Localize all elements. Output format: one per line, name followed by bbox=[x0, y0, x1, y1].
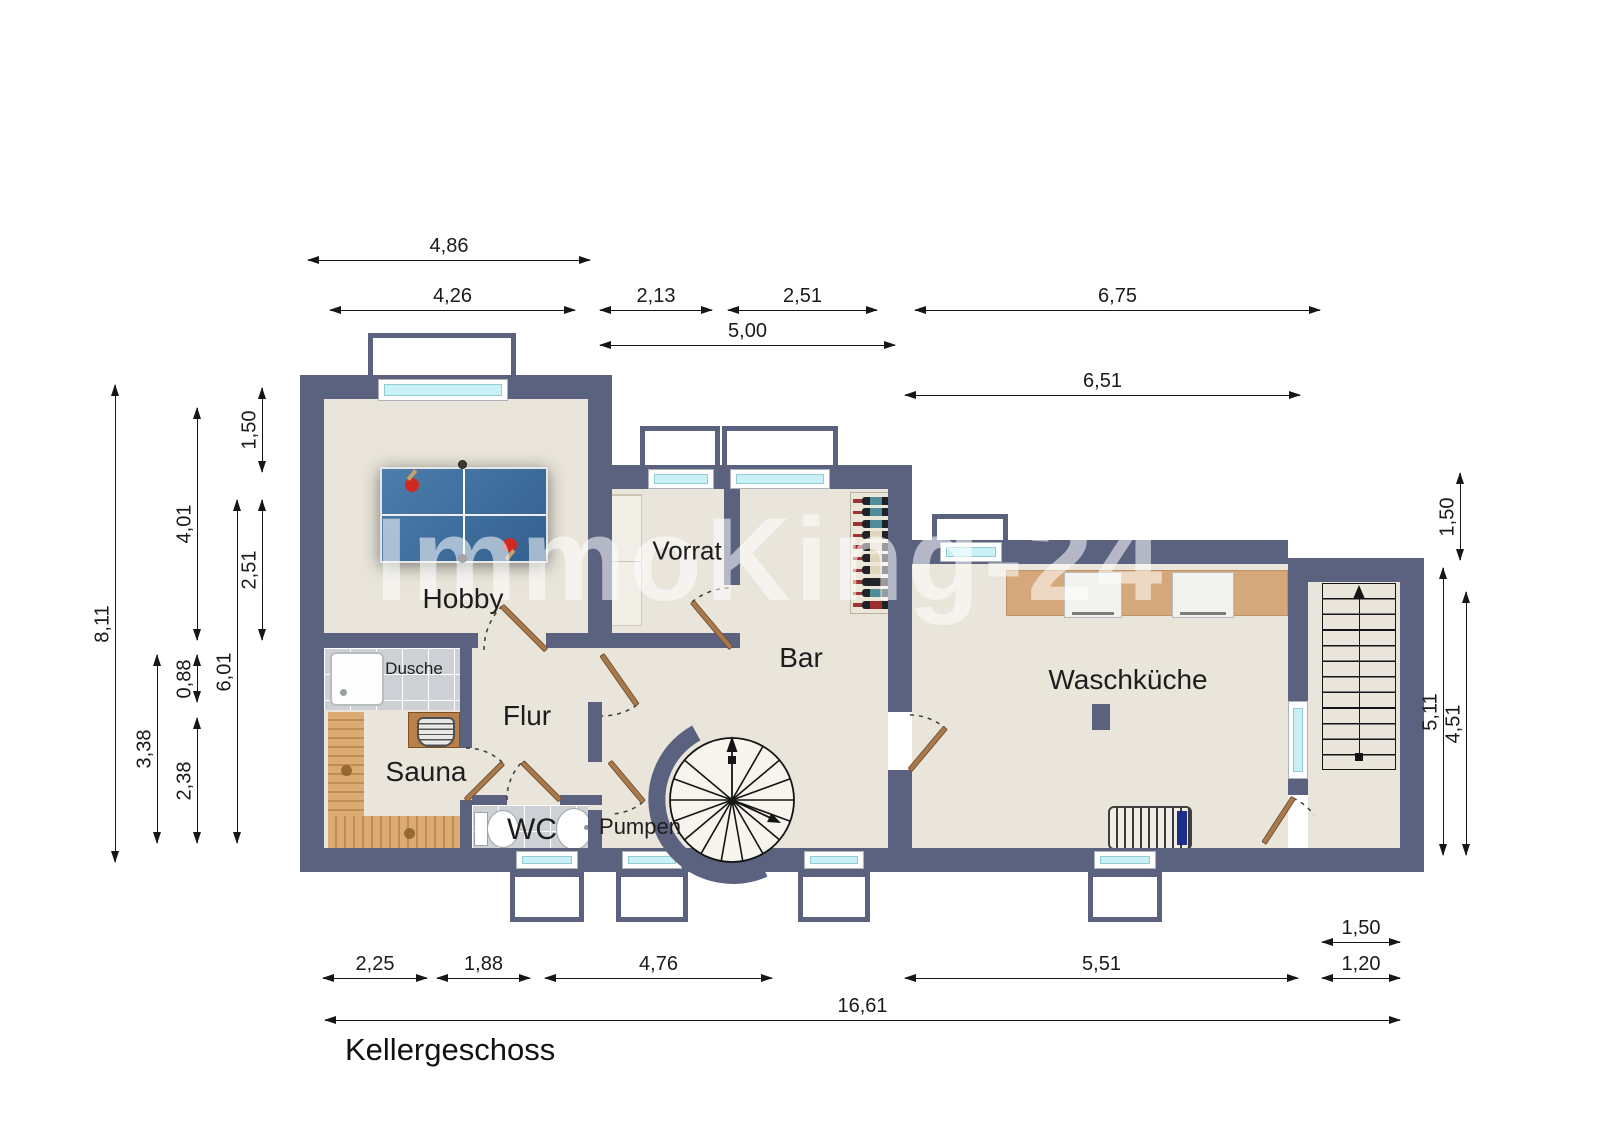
dimension-label: 6,01 bbox=[214, 652, 237, 691]
dimension-label: 1,88 bbox=[464, 953, 503, 976]
dim-top-213: 2,13 bbox=[600, 310, 712, 311]
room-label-hobby: Hobby bbox=[423, 583, 504, 615]
room-label-sauna: Sauna bbox=[386, 756, 467, 788]
dimension-label: 2,25 bbox=[356, 953, 395, 976]
dimension-label: 1,50 bbox=[1437, 497, 1460, 536]
door-leaf bbox=[908, 726, 947, 771]
dimension-label: 1,20 bbox=[1342, 953, 1381, 976]
dimension-label: 5,00 bbox=[728, 320, 767, 343]
door-leaf bbox=[608, 760, 645, 803]
dim-left-338: 3,38 bbox=[157, 655, 158, 843]
dim-top-251: 2,51 bbox=[728, 310, 877, 311]
door-arc bbox=[610, 802, 643, 814]
room-label-bar: Bar bbox=[779, 642, 823, 674]
dimension-label: 0,88 bbox=[174, 659, 197, 698]
dimension-label: 16,61 bbox=[837, 995, 887, 1018]
dim-top-651: 6,51 bbox=[905, 395, 1300, 396]
dim-left-601: 6,01 bbox=[237, 500, 238, 843]
dimension-label: 4,26 bbox=[433, 285, 472, 308]
door-leaf bbox=[1262, 796, 1296, 844]
door-leaf bbox=[464, 761, 504, 801]
dimension-label: 4,86 bbox=[430, 235, 469, 258]
dim-bottom-188: 1,88 bbox=[437, 978, 530, 979]
dim-right-150: 1,50 bbox=[1460, 473, 1461, 560]
plan-title: Kellergeschoss bbox=[345, 1032, 555, 1068]
dim-left-150: 1,50 bbox=[262, 388, 263, 472]
room-label-waschkueche: Waschküche bbox=[1048, 664, 1207, 696]
door-arc bbox=[507, 762, 522, 800]
dimension-label: 3,38 bbox=[134, 730, 157, 769]
dimension-label: 2,51 bbox=[783, 285, 822, 308]
room-label-pumpen: Pumpen bbox=[599, 814, 681, 840]
dim-top-426: 4,26 bbox=[330, 310, 575, 311]
door-leaf bbox=[691, 600, 733, 649]
dim-left-238: 2,38 bbox=[197, 718, 198, 843]
door-arc bbox=[1293, 798, 1314, 815]
dimension-label: 6,75 bbox=[1098, 285, 1137, 308]
dim-left-251: 2,51 bbox=[262, 500, 263, 640]
door-arc bbox=[602, 705, 637, 716]
room-label-wc: WC bbox=[507, 813, 557, 847]
dimension-label: 5,11 bbox=[1420, 693, 1443, 730]
dim-left-088: 0,88 bbox=[197, 655, 198, 702]
dimension-label: 2,51 bbox=[239, 551, 262, 590]
dimension-label: 6,51 bbox=[1083, 370, 1122, 393]
door-leaf bbox=[500, 604, 547, 651]
door-leaf bbox=[600, 654, 639, 707]
door-arc bbox=[910, 715, 945, 728]
dimension-label: 2,13 bbox=[637, 285, 676, 308]
door-leaf bbox=[521, 761, 562, 802]
dim-bottom-120: 1,20 bbox=[1322, 978, 1400, 979]
room-label-dusche: Dusche bbox=[385, 659, 443, 679]
door-arc bbox=[466, 748, 503, 763]
dim-left-401: 4,01 bbox=[197, 408, 198, 640]
dimension-label: 1,50 bbox=[1342, 917, 1381, 940]
dimension-label: 4,01 bbox=[174, 505, 197, 544]
dim-bottom-551: 5,51 bbox=[905, 978, 1298, 979]
room-label-vorrat: Vorrat bbox=[652, 536, 721, 567]
dimension-label: 2,38 bbox=[174, 761, 197, 800]
dim-top-486: 4,86 bbox=[308, 260, 590, 261]
dim-left-811: 8,11 bbox=[115, 385, 116, 862]
dim-right-451: 4,51 bbox=[1466, 592, 1467, 855]
dimension-label: 4,76 bbox=[639, 953, 678, 976]
room-label-flur: Flur bbox=[503, 700, 551, 732]
dim-bottom-225: 2,25 bbox=[323, 978, 427, 979]
dim-bottom-1661: 16,61 bbox=[325, 1020, 1400, 1021]
dimension-label: 5,51 bbox=[1082, 953, 1121, 976]
door-arc bbox=[692, 588, 731, 602]
dimension-label: 4,51 bbox=[1443, 704, 1466, 743]
dimension-label: 1,50 bbox=[239, 411, 262, 450]
floor-plan-canvas: { "title": "Kellergeschoss", "watermark"… bbox=[0, 0, 1600, 1132]
dim-top-500: 5,00 bbox=[600, 345, 895, 346]
dim-bottom-476: 4,76 bbox=[545, 978, 772, 979]
dimension-label: 8,11 bbox=[92, 605, 115, 642]
dim-bottom-150: 1,50 bbox=[1322, 942, 1400, 943]
dim-top-675: 6,75 bbox=[915, 310, 1320, 311]
